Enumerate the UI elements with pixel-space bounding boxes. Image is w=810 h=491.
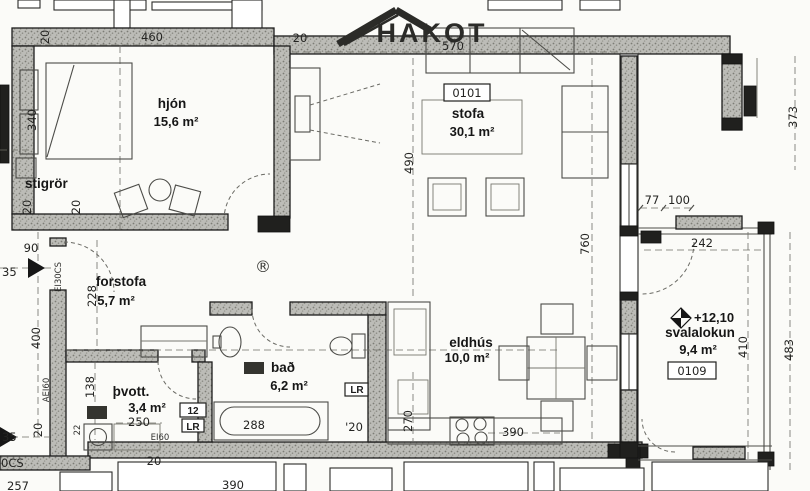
- stove-icon: [450, 417, 494, 445]
- dim-760: 760: [578, 233, 592, 255]
- dim-35: 35: [2, 265, 17, 279]
- sitting-group-icon: [114, 179, 200, 218]
- tag-lr: LR: [350, 385, 364, 396]
- floor-plan: HAKOT hjón 15,6 m² stigrör stofa 30,1 m²…: [0, 0, 810, 491]
- room-label-tvott: þvott.: [113, 384, 150, 399]
- dim-242: 242: [691, 236, 713, 250]
- fire-rating-aei60: AEI60: [42, 378, 52, 403]
- room-label-svalalokun: svalalokun: [665, 325, 735, 340]
- bed-icon: [46, 63, 132, 159]
- room-area-tvott: 3,4 m²: [128, 400, 166, 415]
- room-label-stofa: stofa: [452, 106, 485, 121]
- fire-rating-ei30cs: EI30CS: [54, 262, 64, 292]
- dim-20: 20: [69, 200, 83, 215]
- armchair-icon: [428, 178, 466, 216]
- window-icon: [621, 164, 637, 226]
- room-area-forstofa: 5,7 m²: [97, 293, 135, 308]
- window-wall: [620, 54, 638, 458]
- dim-77: 77: [645, 193, 660, 207]
- tv-cabinet-icon: [290, 68, 380, 160]
- dimension-lines: [0, 45, 795, 472]
- dim-100: 100: [668, 193, 690, 207]
- dim-340: 340: [25, 109, 39, 131]
- dim-20-tick: '20: [345, 420, 363, 434]
- bathtub-icon: [214, 402, 328, 440]
- tag-12: 12: [187, 406, 199, 417]
- elevation-value: +12,10: [694, 310, 734, 325]
- dim-490: 490: [402, 152, 416, 174]
- adjacent-structure-bottom: [60, 462, 768, 491]
- section-marker-icon: [28, 258, 45, 278]
- adjacent-structure-left: [0, 85, 9, 163]
- logo-text: HAKOT: [377, 18, 488, 48]
- room-area-svalalokun: 9,4 m²: [679, 342, 717, 357]
- dim-20: 20: [293, 31, 308, 45]
- room-area-hjon: 15,6 m²: [154, 114, 199, 129]
- dim-390: 390: [222, 478, 244, 491]
- room-label-eldhus: eldhús: [449, 335, 493, 350]
- armchair-icon: [486, 178, 524, 216]
- registered-symbol: ®: [255, 257, 271, 276]
- fire-rating-ei60: EI60: [151, 433, 170, 443]
- window-icon: [621, 334, 637, 390]
- dim-460: 460: [141, 30, 163, 44]
- dim-270: 270: [401, 410, 415, 432]
- dim-257: 257: [7, 479, 29, 491]
- dim-20: 20: [20, 200, 34, 215]
- fixture-chip-icon: [244, 362, 264, 374]
- dim-400: 400: [29, 327, 43, 349]
- tag-lr: LR: [186, 422, 200, 433]
- dim-373: 373: [786, 106, 800, 128]
- toilet-icon: [330, 334, 365, 358]
- dim-483: 483: [782, 339, 796, 361]
- dim-288: 288: [243, 418, 265, 432]
- dim-90: 90: [24, 241, 39, 255]
- dim-22: 22: [73, 425, 83, 436]
- dim-20: 20: [38, 30, 52, 45]
- room-code-stofa: 0101: [452, 86, 481, 100]
- dim-570: 570: [442, 39, 464, 53]
- dim-250: 250: [128, 415, 150, 429]
- dim-138: 138: [83, 376, 97, 398]
- dim-20: 20: [147, 454, 162, 468]
- dim-390: 390: [502, 425, 524, 439]
- dim-228: 228: [85, 285, 99, 307]
- room-code-svalalokun: 0109: [677, 364, 706, 378]
- sink-icon: [213, 327, 241, 357]
- shelf-unit-icon: [562, 86, 608, 178]
- dim-410: 410: [736, 336, 750, 358]
- room-label-hjon: hjón: [158, 96, 187, 111]
- room-area-stofa: 30,1 m²: [450, 124, 495, 139]
- dim-20: 20: [31, 423, 45, 438]
- room-label-bad: bað: [271, 360, 295, 375]
- dining-table-icon: [499, 304, 617, 431]
- floor-plan-drawing: HAKOT hjón 15,6 m² stigrör stofa 30,1 m²…: [0, 0, 810, 491]
- dim-35: 35: [2, 430, 17, 444]
- room-label-stigror: stigrör: [25, 176, 69, 191]
- room-label-forstofa: forstofa: [96, 274, 147, 289]
- fire-rating-fragment: 0CS: [1, 456, 24, 470]
- room-area-eldhus: 10,0 m²: [445, 350, 490, 365]
- room-area-bad: 6,2 m²: [270, 378, 308, 393]
